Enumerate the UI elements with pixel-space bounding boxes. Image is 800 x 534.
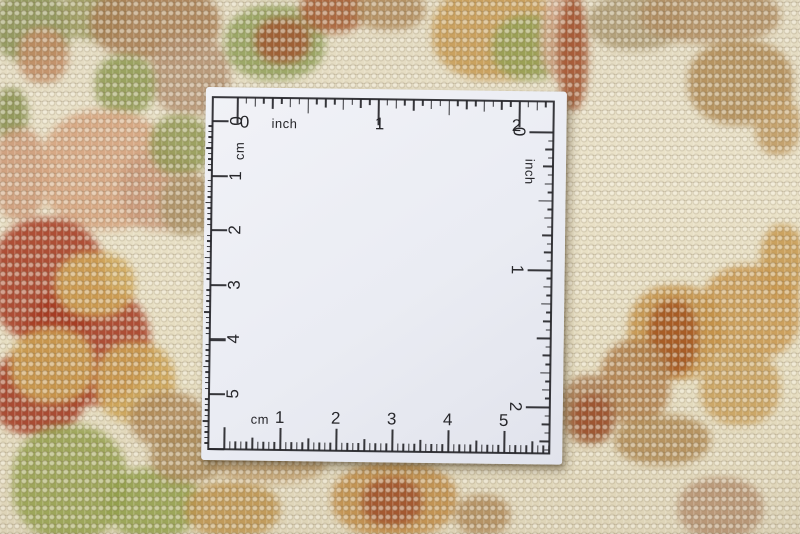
tick-mark <box>430 444 432 452</box>
tick-mark <box>205 349 210 350</box>
tick-mark <box>543 286 551 288</box>
tick-mark <box>464 444 466 452</box>
tick-mark <box>545 183 553 185</box>
tick-mark <box>543 166 553 168</box>
tick-mark <box>206 246 211 247</box>
tick-mark <box>545 381 551 383</box>
scale-number: 1 <box>227 171 244 181</box>
tick-mark <box>528 101 530 107</box>
tick-mark <box>548 446 550 454</box>
scale-unit-label: inch <box>523 159 536 185</box>
tick-mark <box>544 398 550 400</box>
rug-motif <box>640 0 780 43</box>
tick-mark <box>206 262 211 263</box>
tick-mark <box>290 442 292 450</box>
ruler-scale-top-inch: 012inch <box>236 97 554 141</box>
tick-mark <box>246 98 248 104</box>
tick-mark <box>546 243 552 245</box>
tick-mark <box>205 344 210 345</box>
rug-motif <box>185 482 280 534</box>
tick-mark <box>548 157 554 159</box>
tick-mark <box>307 98 309 113</box>
rug-motif <box>255 18 310 63</box>
tick-mark <box>204 426 209 427</box>
tick-mark <box>425 444 427 452</box>
tick-mark <box>547 226 553 228</box>
tick-mark <box>325 99 327 108</box>
tick-mark <box>204 409 209 410</box>
tick-mark <box>290 98 292 107</box>
tick-mark <box>503 431 505 453</box>
tick-mark <box>298 98 300 104</box>
scale-number: 3 <box>387 410 397 427</box>
tick-mark <box>481 445 483 453</box>
tick-mark <box>545 149 553 151</box>
rug-motif <box>572 395 612 440</box>
scale-number: 2 <box>507 402 524 412</box>
photo-rug-with-ruler: 012inch 012345cm 012inch 12345cm <box>0 0 800 534</box>
scale-number: 4 <box>443 411 453 428</box>
tick-mark <box>447 430 449 452</box>
tick-mark <box>547 209 553 211</box>
tick-mark <box>205 355 210 356</box>
tick-mark <box>234 441 236 449</box>
tick-mark <box>204 404 209 405</box>
tick-mark <box>206 267 211 268</box>
tick-mark <box>206 251 211 252</box>
tick-mark <box>546 312 552 314</box>
tick-mark <box>540 372 550 374</box>
scale-number: 0 <box>228 116 245 126</box>
tick-mark <box>208 136 213 137</box>
tick-mark <box>251 437 253 450</box>
tick-mark <box>334 99 336 105</box>
tick-mark <box>204 431 209 432</box>
tick-mark <box>537 445 539 453</box>
tick-mark <box>205 388 210 389</box>
tick-mark <box>341 443 343 451</box>
tick-mark <box>545 101 547 107</box>
tick-mark <box>257 442 259 450</box>
tick-mark <box>346 443 348 451</box>
rug-motif <box>150 115 210 175</box>
tick-mark <box>542 445 544 453</box>
tick-mark <box>528 269 552 272</box>
tick-mark <box>205 202 211 204</box>
tick-mark <box>204 442 209 443</box>
tick-mark <box>307 438 309 451</box>
tick-mark <box>419 439 421 452</box>
tick-mark <box>262 442 264 450</box>
tick-mark <box>386 443 388 451</box>
tick-mark <box>285 442 287 450</box>
tick-mark <box>203 366 209 368</box>
tick-mark <box>268 442 270 450</box>
tick-mark <box>207 218 212 219</box>
tick-mark <box>272 98 274 109</box>
tick-mark <box>207 224 212 225</box>
tick-mark <box>448 100 450 115</box>
scale-number: 2 <box>331 410 341 427</box>
tick-mark <box>542 235 552 237</box>
tick-mark <box>207 213 212 214</box>
tick-mark <box>457 100 459 106</box>
rug-motif <box>355 0 425 30</box>
tick-mark <box>204 437 209 438</box>
tick-mark <box>543 355 551 357</box>
tick-mark <box>422 100 424 106</box>
tick-mark <box>240 441 242 449</box>
tick-mark <box>545 346 551 348</box>
tick-mark <box>531 441 533 454</box>
tick-mark <box>544 217 552 219</box>
tick-mark <box>541 303 551 305</box>
tick-mark <box>397 444 399 452</box>
tick-mark <box>206 306 211 307</box>
tick-mark <box>302 442 304 450</box>
tick-mark <box>470 444 472 452</box>
rug-motif <box>755 95 800 155</box>
tick-mark <box>246 442 248 450</box>
scale-number: 1 <box>275 409 285 426</box>
tick-mark <box>483 101 485 112</box>
tick-mark <box>205 327 210 328</box>
tick-mark <box>335 429 337 451</box>
scale-number: 1 <box>375 115 385 132</box>
tick-mark <box>431 100 433 109</box>
tick-mark <box>263 98 265 104</box>
tick-mark <box>369 99 371 105</box>
rug-motif <box>678 478 763 534</box>
tick-mark <box>208 125 213 126</box>
tick-mark <box>514 445 516 453</box>
tick-mark <box>546 295 552 297</box>
rug-motif <box>10 328 95 403</box>
tick-mark <box>413 100 415 111</box>
tick-mark <box>316 98 318 104</box>
tick-mark <box>360 99 362 108</box>
tick-mark <box>296 442 298 450</box>
tick-mark <box>254 98 256 107</box>
tick-mark <box>324 443 326 451</box>
rug-motif <box>700 350 780 425</box>
tick-mark <box>205 333 210 334</box>
ruler-frame <box>207 96 555 454</box>
tick-mark <box>206 289 211 290</box>
tick-mark <box>207 196 212 197</box>
ruler-scale-right-inch: 012inch <box>507 131 557 458</box>
tick-mark <box>548 140 554 142</box>
scale-number: 5 <box>224 389 241 399</box>
tick-mark <box>539 200 553 202</box>
tick-mark <box>529 131 553 134</box>
tick-mark <box>208 142 213 143</box>
tick-mark <box>526 406 550 409</box>
tick-mark <box>498 445 500 453</box>
tick-mark <box>351 99 353 105</box>
rug-motif <box>95 55 155 115</box>
tick-mark <box>205 317 210 318</box>
tick-mark <box>205 377 210 378</box>
tick-mark <box>387 99 389 105</box>
tick-mark <box>330 443 332 451</box>
tick-mark <box>545 363 551 365</box>
tick-mark <box>509 445 511 453</box>
rug-motif <box>455 495 510 534</box>
tick-mark <box>520 445 522 453</box>
tick-mark <box>402 444 404 452</box>
tick-mark <box>363 439 365 452</box>
scale-number: 2 <box>226 225 243 235</box>
ruler-card: 012inch 012345cm 012inch 12345cm <box>201 87 567 465</box>
tick-mark <box>204 415 209 416</box>
tick-mark <box>358 443 360 451</box>
tick-mark <box>510 101 512 107</box>
tick-mark <box>391 429 393 451</box>
tick-mark <box>206 300 211 301</box>
tick-mark <box>439 100 441 106</box>
tick-mark <box>380 443 382 451</box>
tick-mark <box>205 382 210 383</box>
scale-number: 3 <box>226 280 243 290</box>
scale-unit-label: inch <box>271 117 297 130</box>
tick-mark <box>208 448 224 450</box>
tick-mark <box>207 207 212 208</box>
tick-mark <box>466 100 468 109</box>
tick-mark <box>475 440 477 453</box>
tick-mark <box>204 398 209 399</box>
scale-number: 5 <box>499 412 509 429</box>
tick-mark <box>536 101 538 110</box>
tick-mark <box>544 252 552 254</box>
tick-mark <box>203 420 209 422</box>
tick-mark <box>404 100 406 106</box>
ruler-scale-left-cm: 012345cm <box>201 120 251 453</box>
tick-mark <box>207 235 212 236</box>
tick-mark <box>542 389 550 391</box>
tick-mark <box>492 445 494 453</box>
tick-mark <box>279 428 281 450</box>
tick-mark <box>543 320 551 322</box>
tick-mark <box>207 180 212 181</box>
tick-mark <box>369 443 371 451</box>
tick-mark <box>547 192 553 194</box>
scale-unit-label: cm <box>233 142 246 161</box>
tick-mark <box>206 240 211 241</box>
tick-mark <box>352 443 354 451</box>
tick-mark <box>205 371 210 372</box>
scale-unit-label: cm <box>251 413 270 426</box>
tick-mark <box>205 322 210 323</box>
scale-number: 4 <box>225 334 242 344</box>
tick-mark <box>458 444 460 452</box>
tick-mark <box>207 169 212 170</box>
tick-mark <box>204 311 210 313</box>
scale-number: 1 <box>509 264 526 274</box>
tick-mark <box>442 444 444 452</box>
tick-mark <box>207 164 212 165</box>
tick-mark <box>206 278 211 279</box>
tick-mark <box>206 273 211 274</box>
tick-mark <box>408 444 410 452</box>
tick-mark <box>486 445 488 453</box>
tick-mark <box>453 444 455 452</box>
tick-mark <box>207 191 212 192</box>
tick-mark <box>281 98 283 104</box>
rug-motif <box>615 415 710 465</box>
tick-mark <box>414 444 416 452</box>
tick-mark <box>374 443 376 451</box>
tick-mark <box>395 99 397 108</box>
tick-mark <box>205 256 211 258</box>
rug-motif <box>362 478 422 526</box>
rug-motif <box>18 28 68 83</box>
ruler-scale-bottom-cm: 12345cm <box>223 411 551 453</box>
tick-mark <box>208 158 213 159</box>
tick-mark <box>206 147 212 149</box>
tick-mark <box>223 427 225 449</box>
tick-mark <box>546 278 552 280</box>
tick-mark <box>205 360 210 361</box>
tick-mark <box>501 101 503 110</box>
tick-mark <box>546 260 552 262</box>
tick-mark <box>208 153 213 154</box>
scale-number: 0 <box>511 127 528 137</box>
tick-mark <box>206 295 211 296</box>
tick-mark <box>318 443 320 451</box>
tick-mark <box>526 445 528 453</box>
tick-mark <box>207 186 212 187</box>
tick-mark <box>545 329 551 331</box>
tick-mark <box>436 444 438 452</box>
tick-mark <box>492 101 494 107</box>
tick-mark <box>274 442 276 450</box>
tick-mark <box>475 101 477 107</box>
tick-mark <box>313 442 315 450</box>
tick-mark <box>208 131 213 132</box>
tick-mark <box>229 441 231 449</box>
tick-mark <box>342 99 344 110</box>
rug-motif <box>55 252 135 317</box>
tick-mark <box>547 174 553 176</box>
tick-mark <box>537 338 551 340</box>
